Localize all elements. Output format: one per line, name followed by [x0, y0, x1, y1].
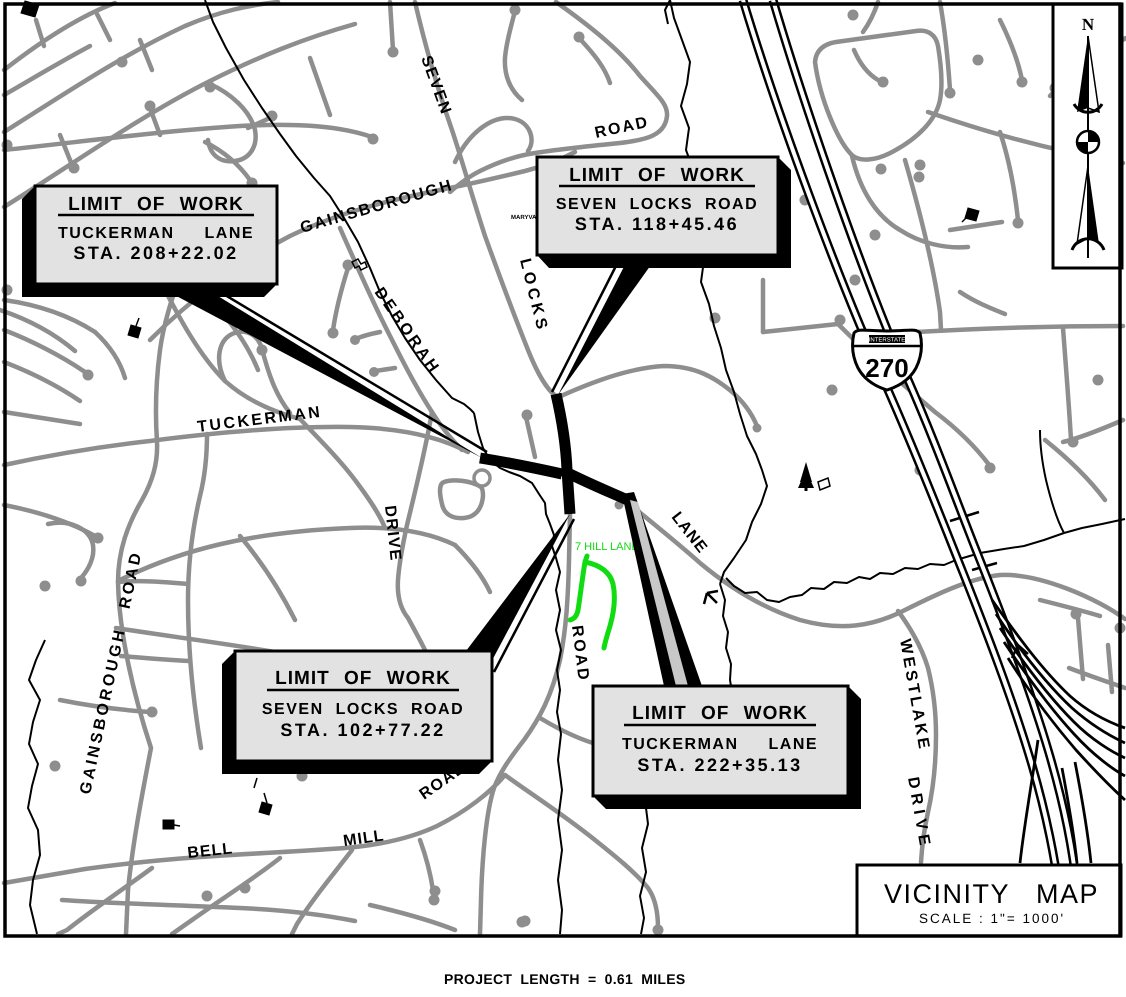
- svg-text:PROJECT LENGTH = 0.61 MILES: PROJECT LENGTH = 0.61 MILES: [444, 971, 686, 987]
- svg-text:LIMIT OF WORK: LIMIT OF WORK: [569, 165, 745, 186]
- svg-text:STA. 102+77.22: STA. 102+77.22: [280, 720, 445, 740]
- svg-text:TUCKERMAN LANE: TUCKERMAN LANE: [622, 736, 818, 753]
- svg-text:LIMIT OF WORK: LIMIT OF WORK: [275, 668, 451, 689]
- svg-text:LIMIT OF WORK: LIMIT OF WORK: [632, 703, 808, 724]
- svg-text:SEVEN LOCKS ROAD: SEVEN LOCKS ROAD: [556, 196, 758, 213]
- svg-text:STA. 118+45.46: STA. 118+45.46: [575, 214, 739, 234]
- svg-text:7 HILL LANE: 7 HILL LANE: [575, 541, 639, 553]
- svg-text:N: N: [1082, 15, 1095, 34]
- svg-text:INTERSTATE: INTERSTATE: [869, 337, 905, 344]
- svg-text:STA. 222+35.13: STA. 222+35.13: [637, 755, 802, 775]
- svg-text:SEVEN LOCKS ROAD: SEVEN LOCKS ROAD: [262, 701, 464, 718]
- svg-text:TUCKERMAN LANE: TUCKERMAN LANE: [58, 225, 254, 242]
- svg-text:270: 270: [865, 353, 908, 383]
- svg-text:SCALE : 1"= 1000': SCALE : 1"= 1000': [919, 911, 1065, 926]
- svg-text:LIMIT OF WORK: LIMIT OF WORK: [68, 194, 244, 215]
- svg-text:MAP: MAP: [1036, 879, 1099, 909]
- svg-text:VICINITY: VICINITY: [884, 879, 1010, 909]
- svg-text:STA. 208+22.02: STA. 208+22.02: [73, 243, 238, 263]
